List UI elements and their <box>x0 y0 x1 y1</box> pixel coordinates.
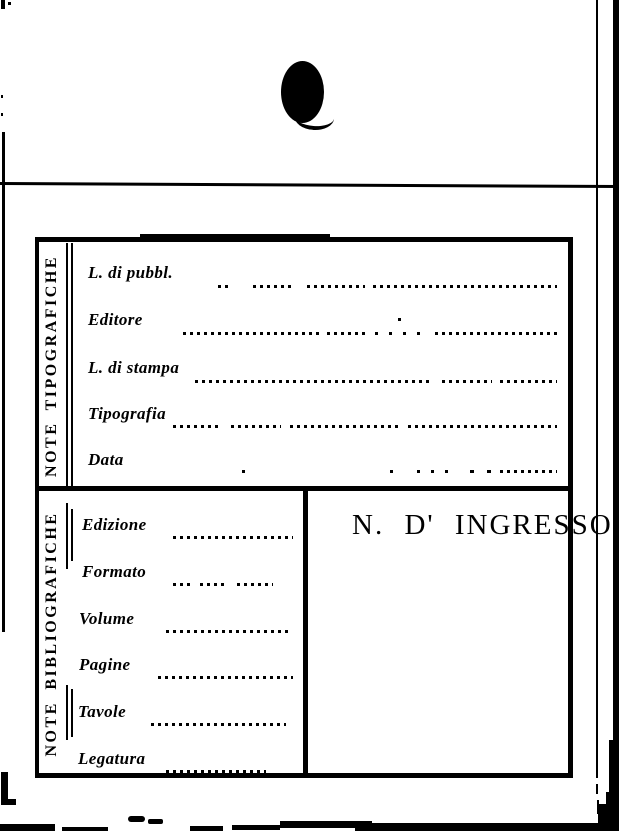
field-label: Formato <box>82 562 146 582</box>
scan-edge-left-dot2 <box>1 113 3 116</box>
dotted-fill-line <box>435 332 557 335</box>
dotted-fill-dot <box>390 470 393 473</box>
section-tipografiche-title: NOTE TIPOGRAFICHE <box>41 250 63 482</box>
double-rule-bottom-b1 <box>71 509 73 561</box>
scan-mark-top-left-dot <box>8 2 11 5</box>
field-label: Editore <box>88 310 143 330</box>
dotted-fill-dot <box>487 470 491 473</box>
card-border-top-patch <box>140 234 330 238</box>
field-label: Tavole <box>78 702 126 722</box>
scan-edge-left-dot1 <box>1 95 3 98</box>
dotted-fill-line <box>183 332 320 335</box>
scan-blob-bottom-a <box>128 816 145 822</box>
punch-hole-shadow-arc <box>293 109 334 132</box>
scan-edge-bottom-1 <box>0 824 55 831</box>
dotted-fill-line <box>166 770 266 773</box>
dotted-fill-line <box>290 425 398 428</box>
dotted-fill-dot <box>242 470 245 473</box>
dotted-fill-line <box>237 583 273 586</box>
scan-edge-bottom-2 <box>62 827 108 831</box>
scan-mark-top-left <box>1 0 5 9</box>
field-label: Tipografia <box>88 404 166 424</box>
catalog-card: NOTE TIPOGRAFICHE L. di pubbl. Editore L… <box>35 237 573 778</box>
dotted-fill-line <box>231 425 281 428</box>
field-label: Pagine <box>79 655 131 675</box>
scan-blob-bottom-left-foot <box>1 799 16 805</box>
dotted-fill-line <box>173 536 293 539</box>
dotted-fill-line <box>327 332 365 335</box>
dotted-fill-line <box>500 470 557 473</box>
accession-cell-divider <box>303 490 308 773</box>
dotted-fill-line <box>173 583 190 586</box>
card-border-bottom <box>35 773 573 778</box>
dotted-fill-line <box>417 470 457 473</box>
dotted-fill-line <box>408 425 557 428</box>
dotted-fill-line <box>375 332 425 335</box>
dotted-fill-line <box>253 285 295 288</box>
scan-edge-right-widen1 <box>609 740 619 800</box>
field-label: L. di stampa <box>88 358 179 378</box>
scan-line-right-thin <box>596 0 598 778</box>
dotted-fill-line <box>307 285 365 288</box>
dotted-fill-line <box>151 723 286 726</box>
scan-edge-right <box>613 0 619 831</box>
double-rule-top-a <box>66 243 68 486</box>
scan-edge-bottom-6 <box>355 823 619 831</box>
double-rule-bottom-a2 <box>66 685 68 740</box>
dotted-fill-dot <box>470 470 474 473</box>
scan-corner-bottom-right <box>598 804 619 831</box>
scan-blob-bottom-b <box>148 819 163 824</box>
stray-dot <box>398 318 401 321</box>
scan-edge-bottom-3 <box>190 826 223 831</box>
section-bibliografiche-title: NOTE BIBLIOGRAFICHE <box>41 499 63 769</box>
page-rule <box>0 182 619 188</box>
card-border-left <box>35 237 39 778</box>
dotted-fill-line <box>442 380 492 383</box>
dotted-fill-line <box>173 425 221 428</box>
field-label: Legatura <box>78 749 145 769</box>
field-label: Data <box>88 450 124 470</box>
double-rule-top-b <box>71 243 73 486</box>
dotted-fill-line <box>500 380 557 383</box>
dotted-fill-line <box>158 676 293 679</box>
field-label: L. di pubbl. <box>88 263 173 283</box>
field-label: Edizione <box>82 515 147 535</box>
double-rule-bottom-a1 <box>66 503 68 569</box>
scan-edge-bottom-4 <box>232 825 280 830</box>
dotted-fill-line <box>373 285 557 288</box>
scanned-catalog-card-page: NOTE TIPOGRAFICHE L. di pubbl. Editore L… <box>0 0 619 831</box>
dotted-fill-line <box>166 630 291 633</box>
scan-edge-left <box>2 132 5 632</box>
dotted-fill-line <box>218 285 232 288</box>
field-label: Volume <box>79 609 134 629</box>
accession-number-header: N. D' INGRESSO <box>352 509 613 542</box>
scan-line-right-dash1 <box>596 784 598 794</box>
dotted-fill-line <box>200 583 227 586</box>
card-border-right <box>568 237 573 778</box>
dotted-fill-line <box>195 380 433 383</box>
double-rule-bottom-b2 <box>71 689 73 737</box>
